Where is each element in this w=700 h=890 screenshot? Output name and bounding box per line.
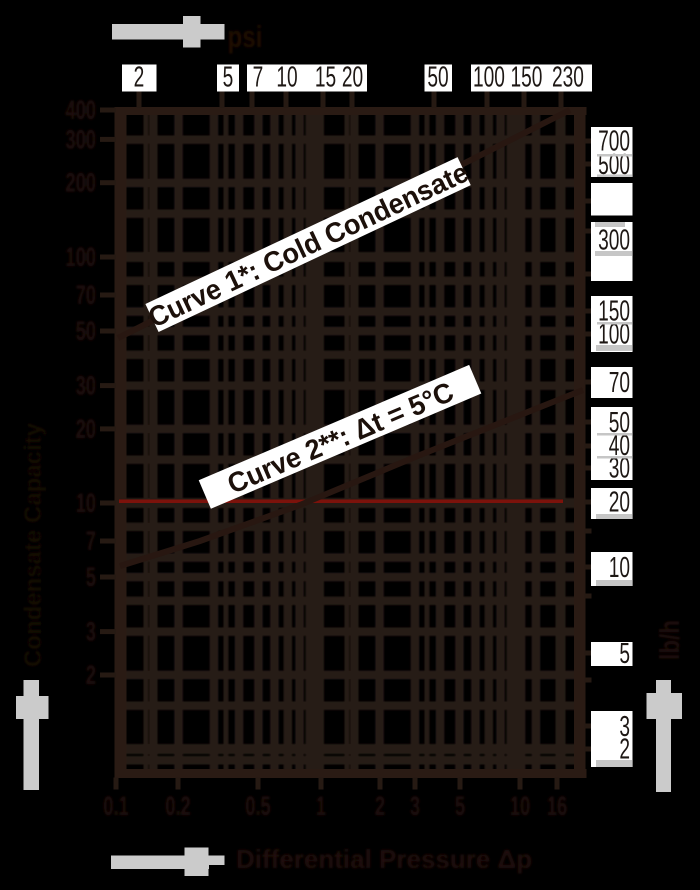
svg-text:70: 70: [609, 367, 630, 399]
svg-text:16: 16: [547, 790, 567, 820]
svg-text:20: 20: [609, 487, 630, 519]
svg-text:300: 300: [65, 124, 96, 154]
svg-text:50: 50: [76, 315, 96, 345]
svg-text:7: 7: [253, 62, 264, 94]
svg-text:Condensate Capacity: Condensate Capacity: [20, 422, 47, 667]
svg-text:7: 7: [86, 525, 96, 555]
svg-text:3: 3: [86, 616, 96, 646]
svg-text:10: 10: [276, 62, 297, 94]
svg-text:2: 2: [134, 62, 145, 94]
svg-text:70: 70: [76, 279, 96, 309]
svg-text:0.1: 0.1: [103, 790, 129, 820]
svg-text:10: 10: [76, 487, 96, 517]
svg-text:100: 100: [473, 62, 505, 94]
svg-text:15: 15: [315, 62, 336, 94]
svg-text:400: 400: [65, 94, 96, 124]
svg-text:1: 1: [316, 790, 326, 820]
svg-text:0.5: 0.5: [245, 790, 271, 820]
svg-text:100: 100: [65, 241, 96, 271]
svg-text:5: 5: [86, 561, 96, 591]
svg-text:230: 230: [552, 62, 584, 94]
svg-text:2: 2: [86, 659, 96, 689]
svg-text:30: 30: [76, 370, 96, 400]
svg-text:5: 5: [223, 62, 234, 94]
svg-text:lb/h: lb/h: [655, 620, 686, 660]
svg-text:2: 2: [375, 790, 385, 820]
svg-text:5: 5: [619, 638, 630, 670]
svg-text:200: 200: [65, 167, 96, 197]
svg-text:150: 150: [511, 62, 543, 94]
svg-text:20: 20: [342, 62, 363, 94]
svg-text:50: 50: [427, 62, 448, 94]
svg-text:10: 10: [510, 790, 530, 820]
svg-text:Differential Pressure Δp: Differential Pressure Δp: [236, 844, 532, 874]
svg-text:0.2: 0.2: [165, 790, 191, 820]
svg-text:3: 3: [410, 790, 420, 820]
svg-text:10: 10: [609, 552, 630, 584]
svg-text:psi: psi: [228, 19, 263, 54]
svg-text:20: 20: [76, 413, 96, 443]
svg-text:5: 5: [455, 790, 465, 820]
